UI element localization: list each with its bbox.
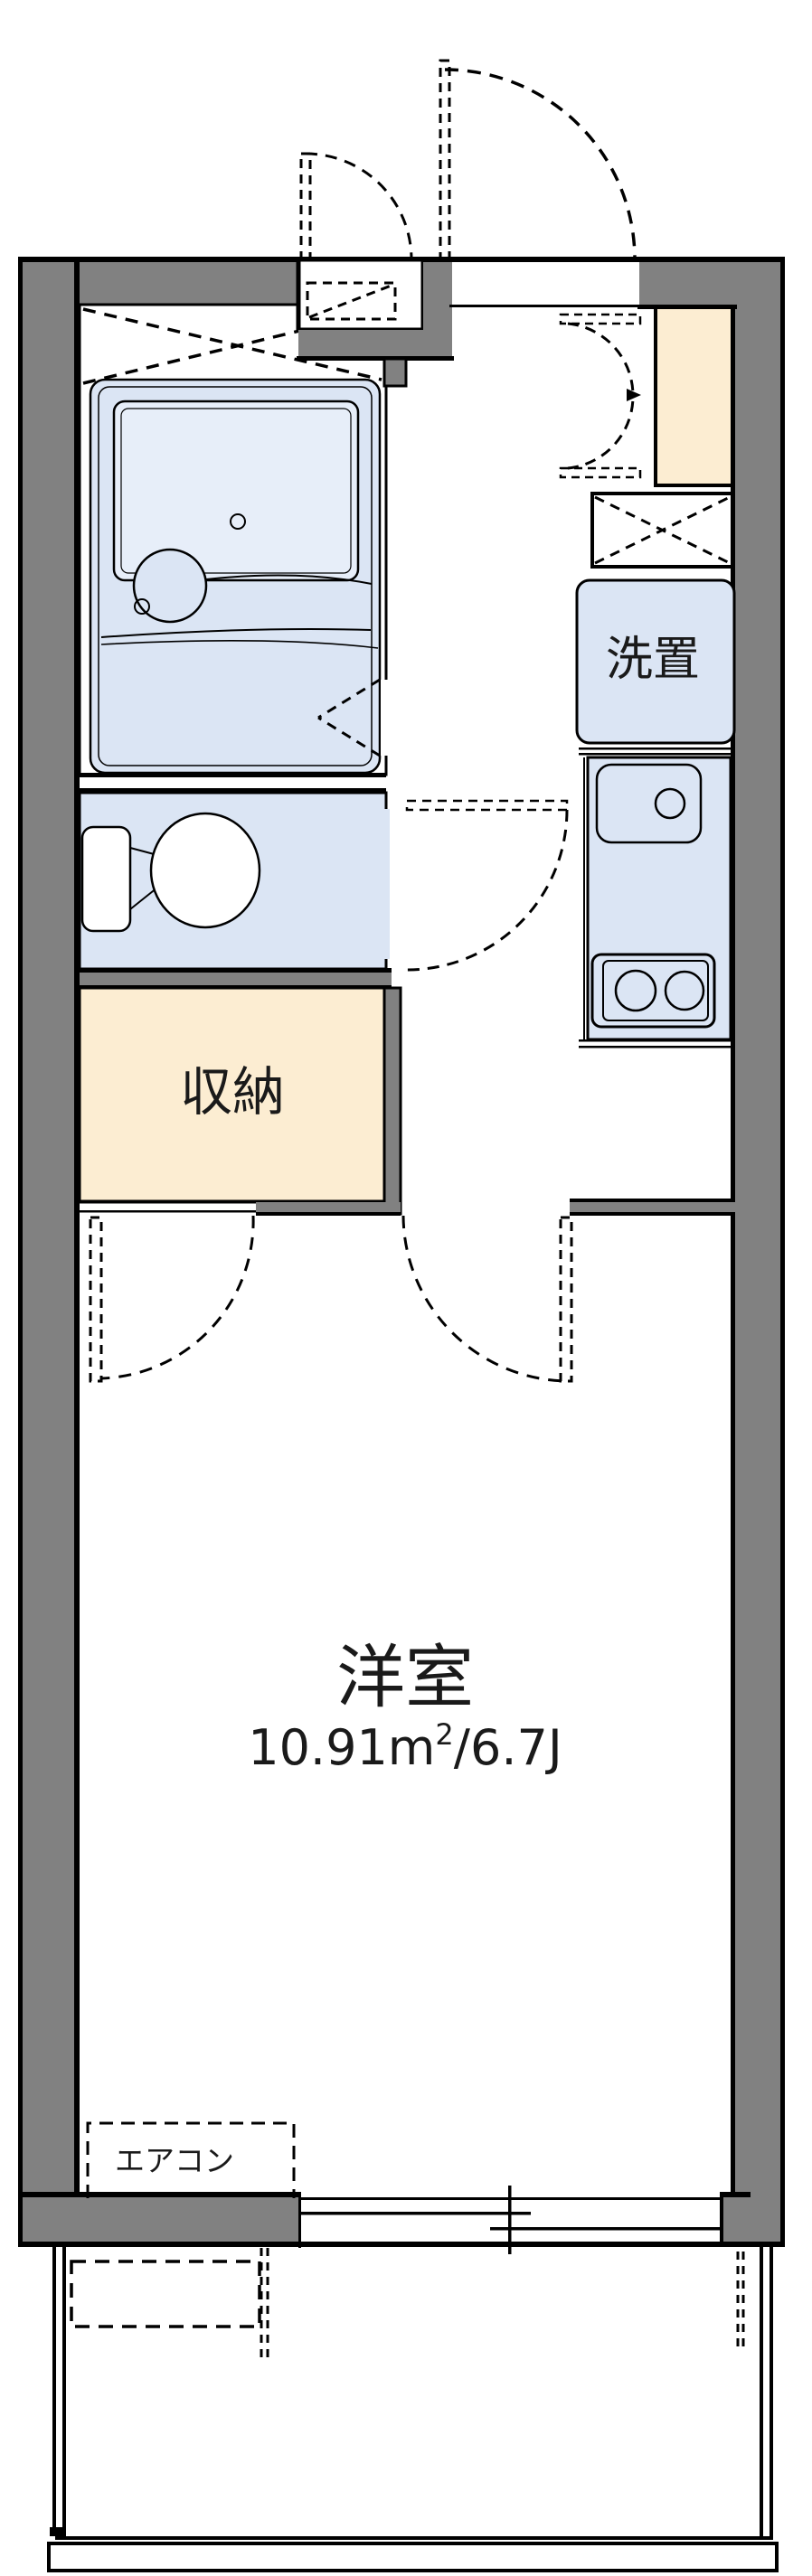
balcony-outer-rail <box>49 2543 777 2571</box>
closet-label: 収納 <box>180 1061 285 1123</box>
wall-room-top-center-edge <box>256 1212 401 1216</box>
kitchen-counter-left-line <box>583 757 585 1039</box>
wall-bottom-left-edge <box>23 2192 298 2197</box>
window-left-frame <box>298 2192 301 2248</box>
toilet-door-opening <box>381 809 390 959</box>
genkan-floor <box>656 307 732 485</box>
kitchen-counter <box>588 757 731 1039</box>
outer-edge-left <box>18 257 23 2247</box>
balcony-left-rail-foot <box>50 2527 66 2536</box>
toilet-closet-wall-top <box>80 968 392 973</box>
kitchen-sep-line-2 <box>579 753 734 756</box>
wall-right <box>735 262 780 2242</box>
main-room-label: 洋室 <box>336 1637 474 1717</box>
wall-room-top-center <box>256 1202 401 1212</box>
outer-edge-bottom <box>18 2242 785 2247</box>
washer-space: 洗置 <box>577 580 734 743</box>
floor-plan-canvas: 収納 <box>0 0 812 2576</box>
balcony-right-rail-outer <box>770 2247 773 2540</box>
closet-opening-line-2 <box>80 1210 256 1213</box>
bathroom <box>80 305 390 793</box>
wall-room-top-right-edge-bottom <box>570 1212 735 1216</box>
bathtub <box>114 401 358 580</box>
size-jo: /6.7J <box>454 1719 562 1776</box>
size-value: 10.91m <box>248 1719 435 1776</box>
size-superscript: 2 <box>435 1717 453 1752</box>
bath-sink-bowl <box>134 550 206 622</box>
balcony-left-rail-inner <box>62 2247 66 2536</box>
window-panel-2 <box>490 2227 722 2231</box>
niche-wall-right <box>423 262 452 330</box>
kitchen <box>579 747 734 1048</box>
niche-wall-bottom-edge <box>297 356 454 361</box>
floor-plan-page: 収納 <box>0 0 812 2576</box>
window-panel-1 <box>298 2212 531 2215</box>
entrance-threshold <box>449 305 639 307</box>
closet: 収納 <box>80 988 401 1214</box>
toilet-closet-wall <box>80 973 392 985</box>
closet-right-wall <box>384 988 401 1214</box>
wall-room-top-right-edge-top <box>570 1199 735 1202</box>
balcony-right-rail-inner <box>760 2247 763 2540</box>
closet-opening-line-1 <box>80 1201 256 1204</box>
kitchen-bottom-line-1 <box>579 1039 734 1042</box>
wall-bottom-pillar-edge <box>720 2192 751 2197</box>
bath-toilet-wall-top <box>80 773 386 777</box>
niche-wall-bottom <box>298 330 452 357</box>
aircon-label: エアコン <box>115 2143 234 2178</box>
washer-label: 洗置 <box>606 633 700 687</box>
toilet-tank <box>82 827 130 931</box>
toilet-bowl <box>151 813 260 927</box>
wall-room-top-right <box>570 1202 735 1212</box>
main-room-size: 10.91m2/6.7J <box>248 1717 562 1776</box>
wall-bottom-left <box>23 2197 298 2242</box>
balcony-floor-edge <box>55 2536 771 2540</box>
wall-left <box>23 262 74 2242</box>
window-meeting-tick <box>508 2186 512 2254</box>
wall-stub <box>384 359 406 386</box>
balcony-left-rail-outer <box>52 2247 56 2536</box>
kitchen-sep-line-1 <box>579 747 734 750</box>
outer-edge-right <box>780 257 785 2247</box>
kitchen-bottom-line-2 <box>579 1046 734 1048</box>
bathroom-door-opening <box>381 680 390 756</box>
wall-bottom-pillar <box>723 2197 751 2242</box>
